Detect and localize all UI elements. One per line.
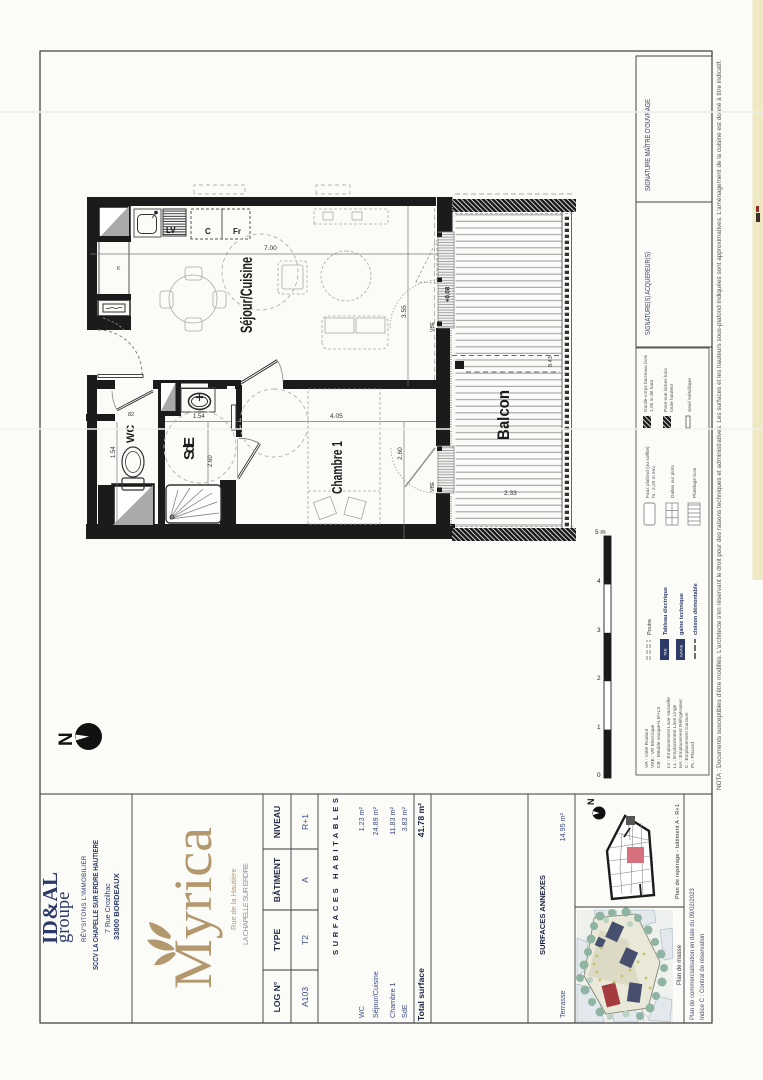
svg-text:HA : Emplacement Réfrigérateu: HA : Emplacement Réfrigérateur: [678, 699, 684, 768]
svg-text:24.89 m²: 24.89 m²: [371, 806, 380, 835]
svg-text:2.60: 2.60: [208, 455, 214, 467]
svg-text:N: N: [586, 799, 596, 806]
svg-text:1.54: 1.54: [111, 446, 117, 458]
svg-text:SCCV LA CHAPELLE SUR ERDRE HAU: SCCV LA CHAPELLE SUR ERDRE HAUTIERE: [93, 840, 100, 970]
svg-text:Séjour/Cuisine: Séjour/Cuisine: [371, 971, 380, 1018]
svg-text:Dalles sur plots: Dalles sur plots: [670, 465, 676, 498]
svg-text:toute hauteur: toute hauteur: [669, 383, 675, 412]
svg-text:Faux plafond (ou soffite): Faux plafond (ou soffite): [645, 446, 651, 498]
svg-text:SdE: SdE: [181, 437, 198, 460]
svg-text:NOTA : Documents susceptibles: NOTA : Documents susceptibles d'être mod…: [716, 60, 723, 790]
svg-text:Chambre 1: Chambre 1: [388, 982, 397, 1018]
svg-text:2: 2: [597, 675, 601, 682]
svg-text:14.95 m²: 14.95 m²: [558, 812, 567, 841]
svg-text:groupe: groupe: [54, 892, 74, 943]
svg-text:Plan de commercialisation en d: Plan de commercialisation en date du 09/…: [690, 888, 696, 1020]
svg-text:Platelage bois: Platelage bois: [692, 467, 698, 498]
svg-text:8.43: 8.43: [548, 356, 554, 367]
svg-text:C : Emplacement Cuisson: C : Emplacement Cuisson: [684, 712, 690, 768]
svg-text:NIVEAU: NIVEAU: [272, 806, 282, 838]
svg-text:ht : 2,20 m env.: ht : 2,20 m env.: [651, 465, 657, 498]
svg-text:5 m: 5 m: [595, 529, 606, 536]
svg-text:Balcon: Balcon: [494, 390, 513, 440]
svg-text:1.23 m²: 1.23 m²: [357, 806, 366, 831]
svg-text:7 Rue Crozilhac: 7 Rue Crozilhac: [105, 883, 112, 933]
svg-text:LV: LV: [166, 226, 176, 235]
svg-text:C: C: [205, 227, 211, 236]
svg-text:SdE: SdE: [400, 1004, 409, 1018]
svg-text:LA CHAPELLE SUR ERDRE: LA CHAPELLE SUR ERDRE: [241, 863, 250, 945]
svg-text:LOG N°: LOG N°: [272, 981, 282, 1012]
svg-text:R+1: R+1: [300, 814, 310, 830]
svg-text:WC: WC: [125, 425, 137, 443]
svg-text:2.60: 2.60: [397, 447, 404, 460]
svg-text:SURFACES ANNEXES: SURFACES ANNEXES: [538, 875, 547, 955]
svg-text:WC: WC: [357, 1006, 366, 1018]
svg-text:4.05: 4.05: [330, 413, 343, 420]
svg-text:Plan de masse: Plan de masse: [677, 944, 683, 985]
svg-text:3.55: 3.55: [401, 305, 408, 318]
svg-text:Terrasse: Terrasse: [558, 990, 567, 1018]
svg-text:Seuil métallique: Seuil métallique: [687, 378, 693, 412]
svg-text:82: 82: [128, 412, 134, 418]
svg-text:Myrica: Myrica: [163, 827, 223, 989]
svg-text:2.33: 2.33: [504, 490, 517, 497]
svg-text:4: 4: [597, 578, 601, 585]
svg-text:Tableau électrique: Tableau électrique: [663, 587, 669, 635]
svg-text:GAINE: GAINE: [679, 644, 684, 657]
svg-text:33000 BORDEAUX: 33000 BORDEAUX: [112, 873, 121, 940]
svg-text:PL : Placard: PL : Placard: [690, 742, 696, 768]
svg-text:VRE : VR Electrique: VRE : VR Electrique: [650, 724, 656, 768]
svg-text:Poutre: Poutre: [647, 619, 653, 635]
svg-text:+0.08: +0.08: [446, 286, 452, 302]
svg-text:TAB: TAB: [663, 648, 668, 656]
svg-text:Total surface: Total surface: [416, 968, 426, 1021]
svg-text:1: 1: [597, 724, 601, 731]
svg-text:Indice C : Contrat de réserva: Indice C : Contrat de réservation: [700, 934, 706, 1020]
svg-text:TYPE: TYPE: [272, 929, 282, 952]
svg-text:Séjour/Cuisine: Séjour/Cuisine: [238, 257, 256, 333]
svg-text:Plan de repérage - bâtiment A: Plan de repérage - bâtiment A - R+1: [675, 804, 681, 899]
svg-text:Pare-vue lames bois: Pare-vue lames bois: [663, 368, 669, 412]
svg-text:RÊV'SITONS L'IMMOBILIER: RÊV'SITONS L'IMMOBILIER: [80, 855, 88, 942]
svg-text:1,00 m de haut: 1,00 m de haut: [649, 379, 655, 412]
svg-text:7.00: 7.00: [264, 245, 277, 252]
svg-text:BÂTIMENT: BÂTIMENT: [271, 857, 282, 902]
svg-text:SIGNATURE(S) ACQUEREUR(S): SIGNATURE(S) ACQUEREUR(S): [645, 252, 652, 335]
svg-text:1.54: 1.54: [193, 414, 205, 420]
svg-text:gaine technique: gaine technique: [679, 593, 685, 635]
svg-text:VBE: VBE: [430, 481, 436, 492]
svg-text:0: 0: [597, 772, 601, 779]
svg-text:3.83 m²: 3.83 m²: [400, 806, 409, 831]
svg-text:CB : Meuble vasque+LM+LS: CB : Meuble vasque+LM+LS: [656, 707, 662, 768]
svg-text:VBE: VBE: [430, 321, 436, 332]
svg-text:cloison démontable: cloison démontable: [693, 583, 699, 635]
svg-text:Chambre 1: Chambre 1: [329, 441, 346, 494]
svg-text:Rue de la Hautière: Rue de la Hautière: [229, 868, 238, 930]
svg-text:LL : Emplacement Lave Linge: LL : Emplacement Lave Linge: [672, 704, 678, 768]
svg-text:VR : Volet Roulant: VR : Volet Roulant: [644, 728, 650, 768]
svg-text:N: N: [56, 732, 77, 746]
svg-text:3: 3: [597, 627, 601, 634]
svg-text:T2: T2: [300, 935, 310, 945]
svg-text:A103: A103: [300, 987, 310, 1007]
svg-text:41.78 m²: 41.78 m²: [416, 803, 426, 838]
svg-text:A: A: [300, 877, 310, 883]
svg-text:Garde-corps barreaux bois: Garde-corps barreaux bois: [643, 354, 649, 412]
svg-text:11.83 m²: 11.83 m²: [388, 806, 397, 834]
svg-text:Fr: Fr: [233, 227, 241, 236]
svg-text:LV : Emplacement Lave Vaissel: LV : Emplacement Lave Vaisselle: [666, 697, 672, 768]
